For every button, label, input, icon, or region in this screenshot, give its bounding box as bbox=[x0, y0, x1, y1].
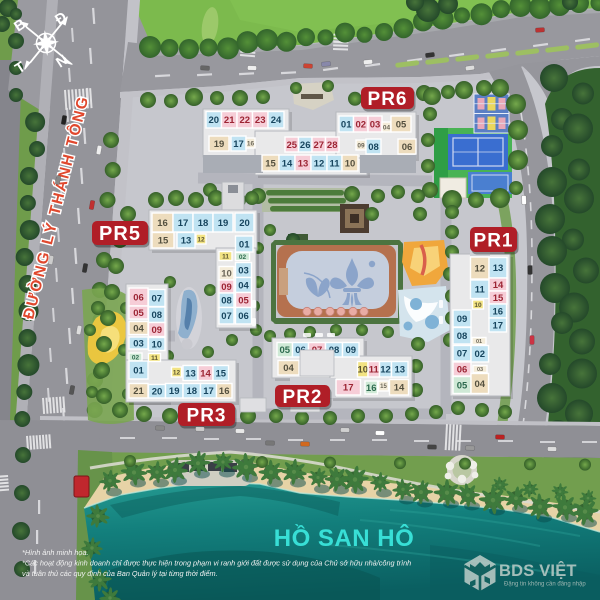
svg-text:10: 10 bbox=[221, 269, 232, 280]
svg-text:03: 03 bbox=[133, 338, 144, 349]
svg-text:28: 28 bbox=[327, 140, 338, 151]
svg-text:17: 17 bbox=[233, 139, 244, 150]
svg-text:02: 02 bbox=[475, 349, 486, 360]
svg-text:09: 09 bbox=[457, 314, 468, 325]
svg-text:14: 14 bbox=[493, 280, 504, 291]
svg-text:13: 13 bbox=[395, 365, 406, 376]
svg-text:16: 16 bbox=[247, 140, 255, 147]
svg-text:12: 12 bbox=[475, 263, 486, 274]
svg-text:04: 04 bbox=[283, 363, 294, 374]
svg-text:02: 02 bbox=[356, 119, 367, 130]
svg-text:12: 12 bbox=[380, 365, 391, 376]
svg-text:15: 15 bbox=[158, 236, 169, 247]
svg-text:12: 12 bbox=[197, 236, 205, 243]
svg-text:12: 12 bbox=[173, 369, 181, 376]
svg-text:11: 11 bbox=[475, 285, 486, 296]
svg-text:11: 11 bbox=[329, 158, 340, 169]
svg-text:23: 23 bbox=[255, 115, 266, 126]
svg-text:04: 04 bbox=[475, 379, 486, 390]
svg-text:17: 17 bbox=[493, 320, 504, 331]
svg-text:06: 06 bbox=[133, 292, 144, 303]
svg-text:02: 02 bbox=[239, 254, 247, 261]
svg-text:19: 19 bbox=[214, 139, 225, 150]
svg-text:*Các hoạt động kinh doanh chỉ: *Các hoạt động kinh doanh chỉ được thực … bbox=[22, 559, 411, 568]
svg-text:05: 05 bbox=[280, 345, 291, 356]
svg-text:06: 06 bbox=[457, 364, 468, 375]
svg-text:09: 09 bbox=[221, 282, 232, 293]
svg-text:17: 17 bbox=[178, 218, 189, 229]
svg-text:PR5: PR5 bbox=[99, 223, 141, 245]
svg-text:14: 14 bbox=[394, 383, 405, 394]
svg-text:06: 06 bbox=[238, 311, 249, 322]
svg-text:04: 04 bbox=[238, 280, 249, 291]
svg-text:07: 07 bbox=[457, 349, 468, 360]
svg-text:13: 13 bbox=[298, 158, 309, 169]
svg-text:10: 10 bbox=[474, 302, 482, 309]
svg-text:07: 07 bbox=[152, 293, 163, 304]
svg-text:09: 09 bbox=[357, 142, 365, 149]
svg-text:15: 15 bbox=[493, 293, 504, 304]
svg-text:26: 26 bbox=[300, 140, 311, 151]
svg-text:21: 21 bbox=[133, 386, 144, 397]
svg-text:01: 01 bbox=[341, 119, 352, 130]
svg-text:13: 13 bbox=[185, 368, 196, 379]
svg-text:14: 14 bbox=[282, 158, 293, 169]
svg-text:01: 01 bbox=[239, 239, 250, 250]
svg-text:20: 20 bbox=[152, 387, 163, 398]
svg-text:09: 09 bbox=[152, 325, 163, 336]
svg-text:08: 08 bbox=[221, 296, 232, 307]
svg-text:05: 05 bbox=[133, 308, 144, 319]
svg-text:17: 17 bbox=[343, 383, 354, 394]
svg-text:02: 02 bbox=[132, 354, 140, 361]
svg-text:06: 06 bbox=[402, 142, 413, 153]
svg-text:Đặng tin không cần đăng nhập: Đặng tin không cần đăng nhập bbox=[504, 582, 586, 588]
svg-text:15: 15 bbox=[380, 384, 387, 390]
svg-text:15: 15 bbox=[265, 158, 276, 169]
svg-text:09: 09 bbox=[346, 345, 357, 356]
svg-text:BDS VIỆT: BDS VIỆT bbox=[499, 561, 577, 580]
svg-text:16: 16 bbox=[366, 383, 377, 394]
svg-text:16: 16 bbox=[157, 218, 168, 229]
svg-text:PR2: PR2 bbox=[283, 387, 323, 408]
svg-text:PR1: PR1 bbox=[474, 230, 514, 251]
svg-text:16: 16 bbox=[493, 306, 504, 317]
svg-text:05: 05 bbox=[238, 295, 249, 306]
svg-text:18: 18 bbox=[187, 386, 198, 397]
svg-text:12: 12 bbox=[314, 158, 325, 169]
svg-text:*Hình ảnh minh họa.: *Hình ảnh minh họa. bbox=[22, 548, 89, 557]
svg-text:11: 11 bbox=[369, 365, 380, 376]
svg-text:05: 05 bbox=[457, 380, 468, 391]
svg-text:20: 20 bbox=[239, 218, 250, 229]
svg-text:10: 10 bbox=[345, 158, 356, 169]
svg-text:01: 01 bbox=[476, 339, 482, 345]
svg-text:18: 18 bbox=[198, 218, 209, 229]
svg-text:19: 19 bbox=[169, 386, 180, 397]
svg-text:10: 10 bbox=[358, 365, 369, 376]
svg-text:10: 10 bbox=[152, 339, 163, 350]
svg-text:07: 07 bbox=[221, 311, 232, 322]
svg-text:PR3: PR3 bbox=[187, 405, 227, 426]
svg-text:04: 04 bbox=[133, 323, 144, 334]
svg-text:13: 13 bbox=[493, 263, 504, 274]
svg-text:và tuân thủ các quy định của B: và tuân thủ các quy định của Ban Quản lý… bbox=[22, 569, 218, 578]
svg-text:11: 11 bbox=[222, 253, 229, 260]
svg-text:21: 21 bbox=[224, 115, 235, 126]
svg-text:03: 03 bbox=[238, 265, 249, 276]
svg-text:27: 27 bbox=[314, 140, 325, 151]
svg-text:19: 19 bbox=[218, 218, 229, 229]
svg-text:08: 08 bbox=[457, 331, 468, 342]
svg-text:20: 20 bbox=[209, 115, 220, 126]
svg-text:25: 25 bbox=[287, 140, 298, 151]
svg-text:15: 15 bbox=[216, 368, 227, 379]
svg-text:24: 24 bbox=[271, 115, 282, 126]
svg-text:05: 05 bbox=[396, 119, 407, 130]
svg-text:11: 11 bbox=[151, 355, 158, 362]
svg-text:01: 01 bbox=[133, 365, 144, 376]
svg-text:22: 22 bbox=[240, 115, 251, 126]
svg-text:14: 14 bbox=[200, 368, 211, 379]
svg-text:PR6: PR6 bbox=[368, 89, 408, 110]
svg-text:HỒ SAN HÔ: HỒ SAN HÔ bbox=[274, 524, 415, 552]
svg-text:17: 17 bbox=[203, 386, 214, 397]
svg-text:08: 08 bbox=[152, 310, 163, 321]
svg-text:04: 04 bbox=[383, 124, 391, 131]
svg-text:13: 13 bbox=[181, 236, 192, 247]
svg-text:16: 16 bbox=[219, 386, 230, 397]
svg-text:08: 08 bbox=[368, 142, 379, 153]
svg-text:03: 03 bbox=[477, 367, 483, 373]
svg-text:03: 03 bbox=[370, 119, 381, 130]
